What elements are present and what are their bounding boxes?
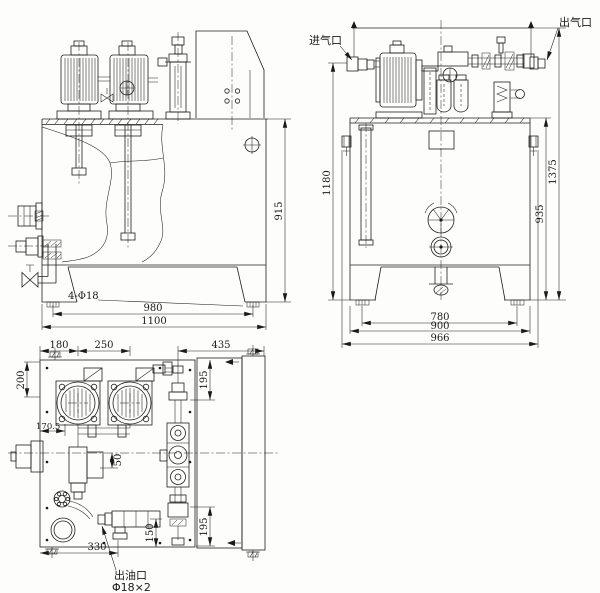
drawing-sheet: 4-Φ18 980 1100 915 (0, 0, 600, 593)
plan-plates (8, 356, 278, 550)
small-valve-front (101, 88, 113, 102)
label-air-outlet: 出气口 (559, 15, 592, 29)
dim-150: 150 (145, 523, 156, 542)
dim-195-bottom: 195 (199, 517, 210, 536)
pump-column-side (422, 66, 438, 114)
cleanout-cover-top (51, 518, 75, 542)
plan-left-fitting (11, 441, 43, 472)
dim-180: 180 (49, 340, 68, 351)
dim-foot-holes: 4-Φ18 (68, 291, 99, 302)
section-arrows (225, 359, 241, 546)
outlet-piping-side (468, 37, 545, 70)
side-tank (350, 118, 530, 265)
motor-side (376, 41, 422, 118)
dim-1375: 1375 (548, 159, 559, 184)
label-oil-outlet: 出油口 (114, 568, 147, 582)
level-gauge (359, 123, 373, 248)
left-wall-fittings (8, 203, 50, 257)
label-air-inlet: 进气口 (309, 33, 342, 47)
dim-915: 915 (274, 201, 285, 220)
motor-right-front (109, 41, 153, 119)
relief-valve-side (492, 82, 525, 118)
motor1-top (56, 368, 102, 425)
side-view: 进气口 出气口 1180 1375 935 780 900 966 (309, 15, 592, 348)
valve-manifold-top (153, 358, 189, 545)
drain-valve-front (22, 240, 61, 287)
hydraulic-power-unit-drawing: 4-Φ18 980 1100 915 (0, 0, 600, 593)
dim-435: 435 (211, 340, 230, 351)
side-hood (351, 21, 534, 57)
dim-200: 200 (16, 370, 27, 389)
dim-900: 900 (430, 321, 449, 332)
dim-50: 50 (113, 454, 124, 467)
nameplate (429, 131, 454, 149)
side-dimensions: 进气口 出气口 1180 1375 935 780 900 966 (309, 15, 592, 348)
pressure-gauge-front (120, 81, 134, 95)
air-breather-top (54, 491, 70, 507)
air-inlet-fitting (347, 57, 380, 71)
motor2-top (108, 368, 154, 425)
dim-195-top: 195 (199, 370, 210, 389)
dim-1100: 1100 (141, 316, 166, 327)
twin-filters-side (437, 46, 468, 112)
front-view: 4-Φ18 980 1100 915 (8, 31, 291, 330)
motor-center-marks (68, 393, 140, 413)
dim-170-5: 170.5 (36, 422, 60, 432)
dim-966: 966 (430, 333, 449, 344)
dim-1180: 1180 (322, 170, 333, 195)
filter-front (158, 37, 191, 119)
plan-view: 180 250 435 200 170.5 50 195 195 150 330… (8, 340, 278, 593)
dim-330: 330 (87, 542, 106, 553)
drain-flange (429, 237, 453, 257)
dim-250: 250 (94, 340, 113, 351)
front-tank (42, 32, 268, 265)
dim-935: 935 (535, 204, 546, 223)
lifting-hole-front (243, 136, 261, 154)
dim-980: 980 (143, 303, 162, 314)
label-oil-outlet-spec: Φ18×2 (112, 581, 151, 593)
control-panel-front (196, 31, 264, 118)
front-dimensions: 4-Φ18 980 1100 915 (42, 119, 291, 330)
